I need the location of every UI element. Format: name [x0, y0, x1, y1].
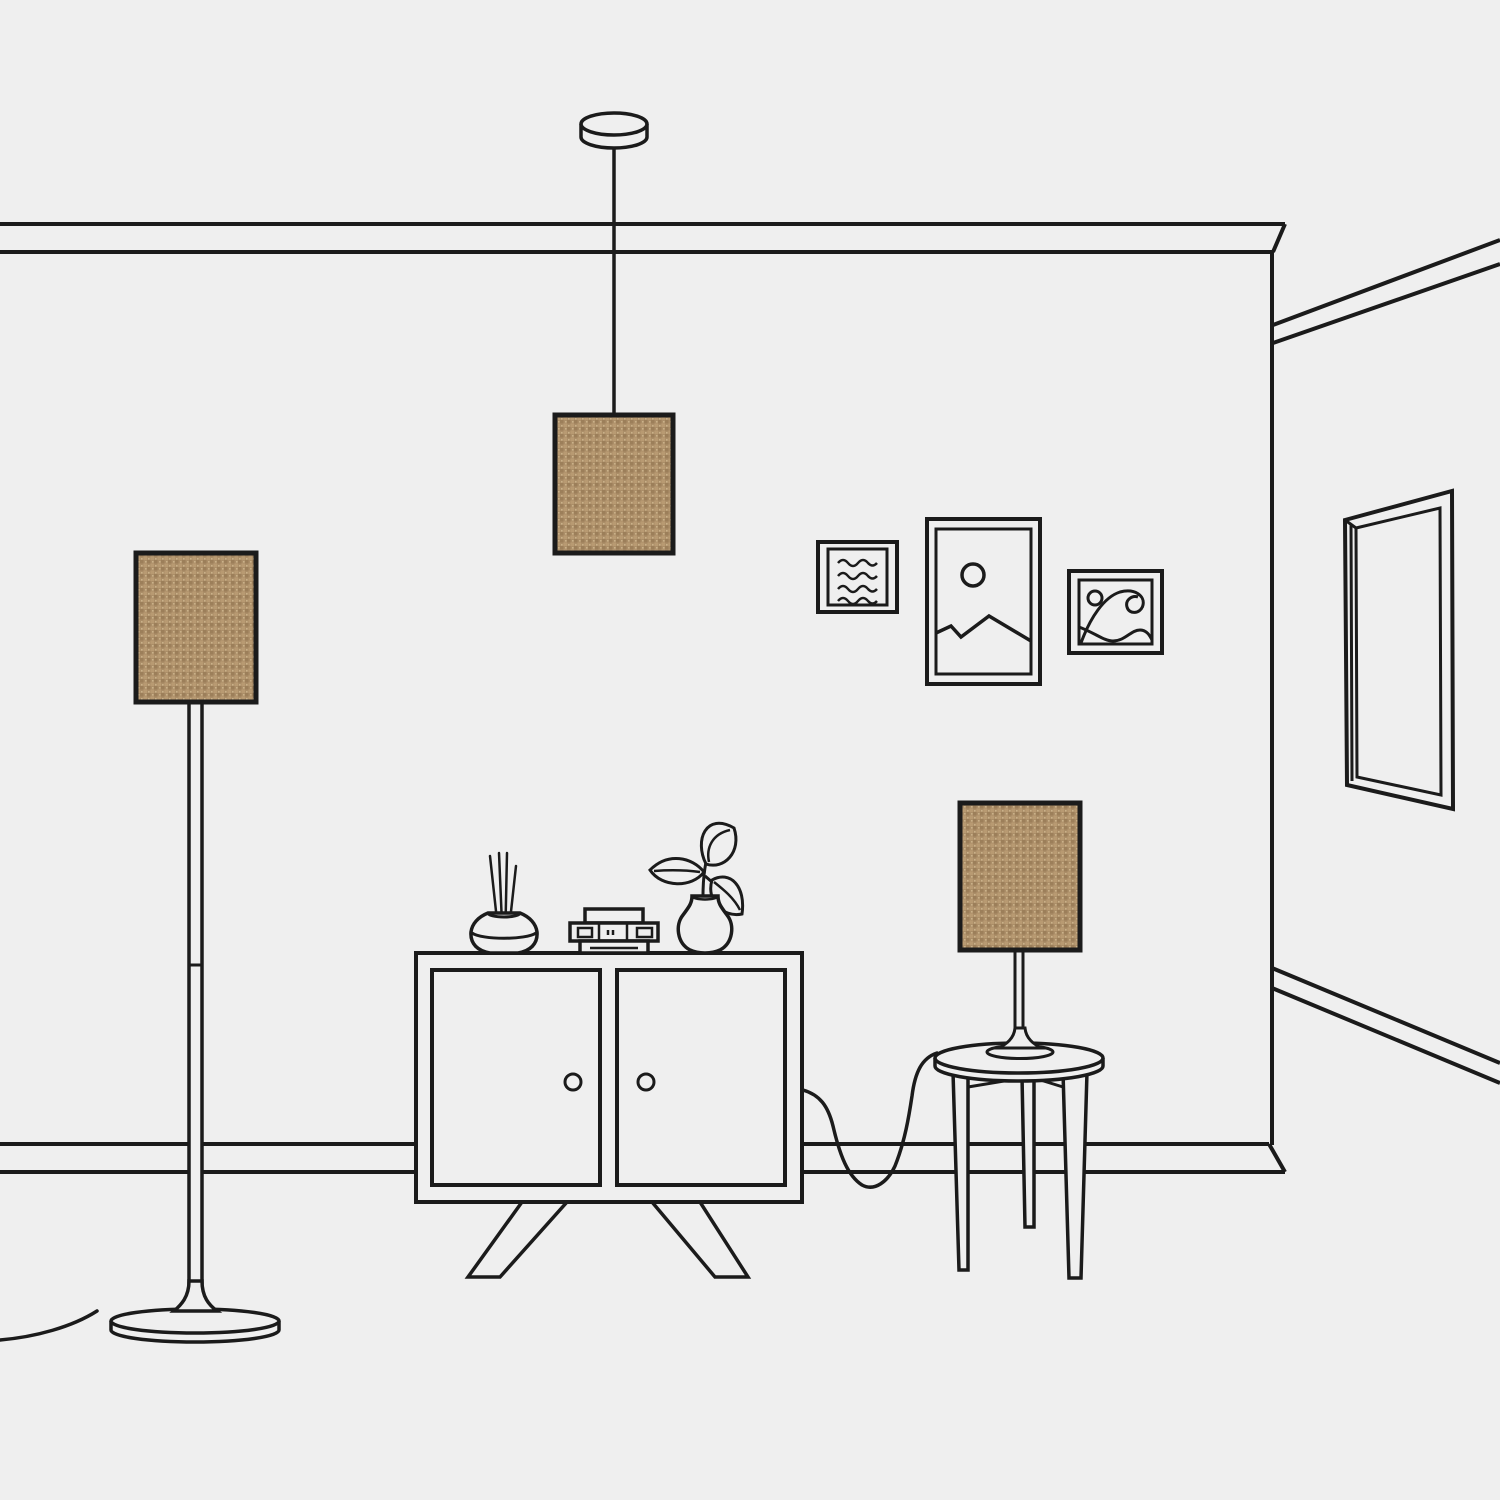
table-lamp-trumpet-foot	[999, 1028, 1041, 1048]
floor-lamp-shade	[136, 553, 256, 702]
table-leg-left	[953, 1072, 968, 1270]
table-leg-back	[1022, 1076, 1034, 1227]
pendant-lamp	[555, 113, 673, 553]
floor-lamp	[0, 553, 279, 1342]
reed-diffuser	[471, 853, 537, 953]
frame-waves	[818, 542, 897, 612]
plant-leaf-top	[701, 823, 736, 865]
table-lamp-cord	[803, 1053, 937, 1187]
crown-molding-side	[1273, 240, 1500, 343]
cabinet-knob-right	[638, 1074, 654, 1090]
illustration-canvas: Minimal line-art illustration of a livin…	[0, 0, 1500, 1500]
cabinet-leg-left	[468, 1202, 567, 1277]
diffuser-vase	[471, 913, 537, 953]
floor-lamp-pole	[189, 702, 202, 1282]
frame-mountain-outer	[927, 519, 1040, 684]
pendant-canopy-top	[581, 113, 647, 135]
mirror	[1345, 491, 1453, 809]
side-table	[935, 1043, 1103, 1278]
floor-lamp-trumpet-foot	[174, 1281, 217, 1311]
plant-in-vase	[650, 823, 743, 953]
crown-molding-front	[0, 224, 1285, 252]
room-illustration: Minimal line-art illustration of a livin…	[0, 0, 1500, 1500]
cabinet	[416, 953, 802, 1277]
radio	[570, 909, 658, 953]
floor-lamp-cord	[0, 1311, 97, 1340]
frame-mountain	[927, 519, 1040, 684]
table-lamp-stem	[1015, 950, 1023, 1030]
cabinet-leg-right	[652, 1202, 748, 1277]
table-lamp	[960, 803, 1080, 1059]
mirror-outer	[1345, 491, 1453, 809]
cabinet-knob-left	[565, 1074, 581, 1090]
table-leg-right	[1063, 1072, 1087, 1278]
cabinet-top-items	[471, 823, 743, 953]
pendant-shade	[555, 415, 673, 553]
radio-top-box	[585, 909, 643, 923]
baseboard-side	[1272, 968, 1500, 1083]
gallery-wall	[818, 491, 1453, 809]
frame-wave-art	[1069, 571, 1162, 653]
table-lamp-shade	[960, 803, 1080, 950]
